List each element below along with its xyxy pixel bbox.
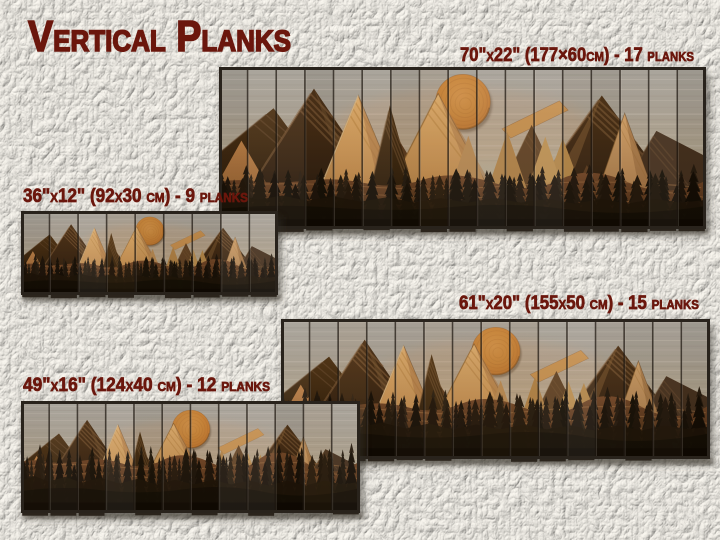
svg-text:70"x22" (177×60cm) - 17 planks: 70"x22" (177×60cm) - 17 planks: [460, 45, 694, 66]
svg-text:Vertical Planks: Vertical Planks: [28, 13, 291, 61]
svg-text:61"x20" (155x50 cm) - 15 plan: 61"x20" (155x50 cm) - 15 planks: [459, 293, 699, 314]
svg-text:49"x16" (124x40 cm) - 12 plan: 49"x16" (124x40 cm) - 12 planks: [23, 375, 270, 396]
svg-text:36"x12" (92x30 cm) - 9 planks: 36"x12" (92x30 cm) - 9 planks: [23, 186, 248, 207]
